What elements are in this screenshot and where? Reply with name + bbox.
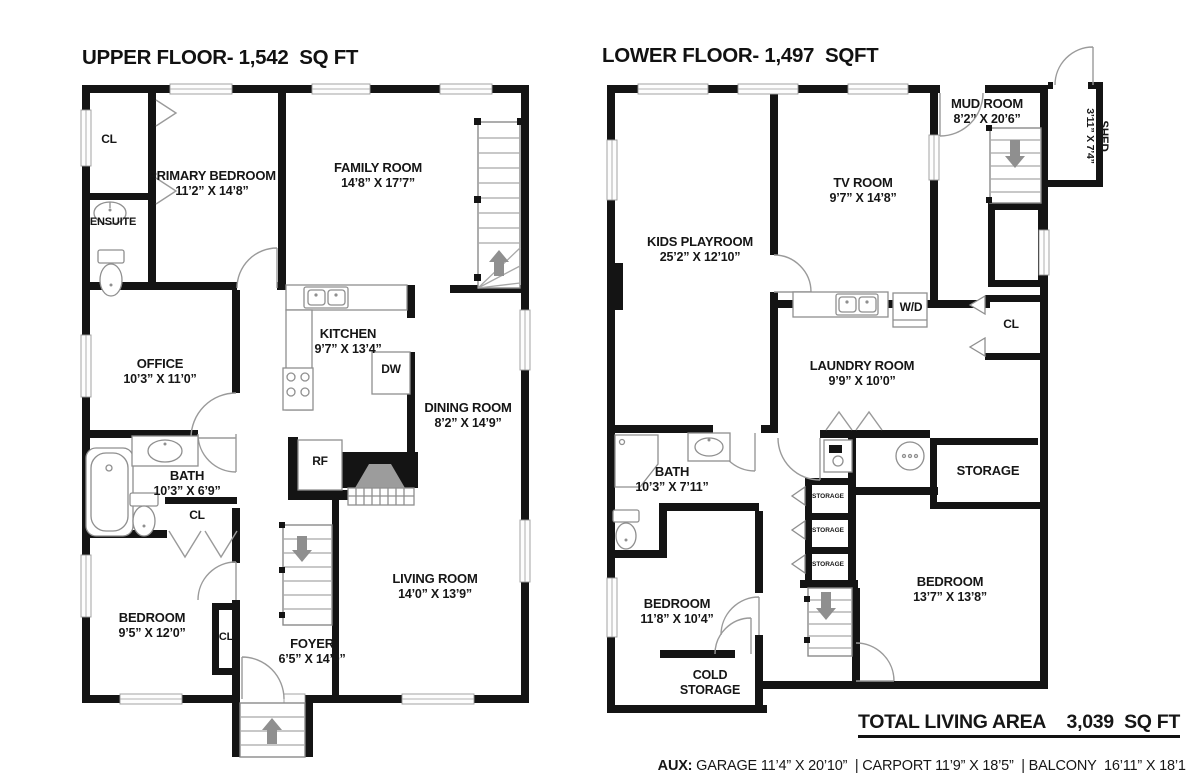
upper-floor-title: UPPER FLOOR- 1,542 SQ FT: [82, 46, 358, 70]
room-label-family-room: FAMILY ROOM14’8” X 17’7”: [298, 160, 458, 191]
bath-sink-icon: [132, 436, 198, 466]
toilet-lower-icon: [613, 510, 639, 549]
room-label-storage-room: STORAGE: [918, 463, 1058, 479]
room-label-bath: BATH10’3” X 6’9”: [117, 468, 257, 499]
room-label-bedroom-left: BEDROOM11’8” X 10’4”: [607, 596, 747, 627]
room-label-ensuite: ENSUITE: [80, 216, 146, 229]
stove-icon: [283, 368, 313, 410]
kitchen-sink-icon: [304, 287, 348, 308]
total-living-area: TOTAL LIVING AREA 3,039 SQ FT: [840, 711, 1180, 738]
room-label-mud-room: MUD ROOM8’2” X 20’6”: [927, 96, 1047, 127]
room-label-closet-lower: CL: [983, 317, 1039, 332]
room-label-closet-top: CL: [79, 132, 139, 147]
label-refrigerator: RF: [298, 454, 342, 469]
laundry-sink-icon: [836, 294, 878, 315]
furnace-icon: [824, 440, 852, 472]
aux-values: GARAGE 11’4” X 20’10” | CARPORT 11’9” X …: [692, 758, 1185, 774]
room-label-primary-bedroom: PRIMARY BEDROOM11’2” X 14’8”: [122, 168, 302, 199]
room-label-laundry-room: LAUNDRY ROOM9’9” X 10’0”: [782, 358, 942, 389]
stair-landing: [995, 210, 1038, 280]
bath-toilet-icon: [130, 493, 158, 536]
total-living-area-label: TOTAL LIVING AREA: [858, 711, 1046, 733]
ensuite-toilet-icon: [98, 250, 124, 296]
room-label-bath-lower: BATH10’3” X 7’11”: [602, 464, 742, 495]
upper-floor-plan: CL PRIMARY BEDROOM11’2” X 14’8” ENSUITE …: [72, 80, 542, 770]
label-storage-closet-3: STORAGE: [805, 561, 851, 569]
label-washer-dryer: W/D: [891, 300, 931, 315]
room-label-shed: SHED3’11” X 7’4”: [1050, 94, 1110, 178]
bath-sink-lower-icon: [688, 433, 730, 461]
aux-label: AUX:: [658, 758, 693, 774]
room-label-bedroom-right: BEDROOM13’7” X 13’8”: [870, 574, 1030, 605]
room-label-tv-room: TV ROOM9’7” X 14’8”: [793, 175, 933, 206]
aux-dimensions: AUX: GARAGE 11’4” X 20’10” | CARPORT 11’…: [650, 742, 1195, 774]
label-storage-closet-1: STORAGE: [805, 493, 851, 501]
stairs-foyer: [279, 522, 332, 625]
room-label-kids-playroom: KIDS PLAYROOM25’2” X 12’10”: [620, 234, 780, 265]
lower-floor-plan: KIDS PLAYROOM25’2” X 12’10” TV ROOM9’7” …: [598, 40, 1128, 730]
stairs-upper-right: [474, 118, 524, 288]
total-living-area-value: 3,039 SQ FT: [1067, 711, 1180, 733]
stairs-entry: [240, 703, 305, 757]
room-label-living-room: LIVING ROOM14’0” X 13’9”: [355, 571, 515, 602]
label-dishwasher: DW: [372, 362, 410, 377]
room-label-kitchen: KITCHEN9’7” X 13’4”: [278, 326, 418, 357]
room-label-foyer: FOYER6’5” X 14’0”: [242, 636, 382, 667]
room-label-cold-storage: COLD STORAGE: [668, 668, 752, 699]
room-label-closet-bath: CL: [167, 508, 227, 523]
room-label-office: OFFICE10’3” X 11’0”: [90, 356, 230, 387]
stairs-lower-center: [804, 588, 852, 656]
stairs-mudroom: [986, 125, 1041, 203]
label-storage-closet-2: STORAGE: [805, 527, 851, 535]
room-label-dining-room: DINING ROOM8’2” X 14’9”: [388, 400, 548, 431]
